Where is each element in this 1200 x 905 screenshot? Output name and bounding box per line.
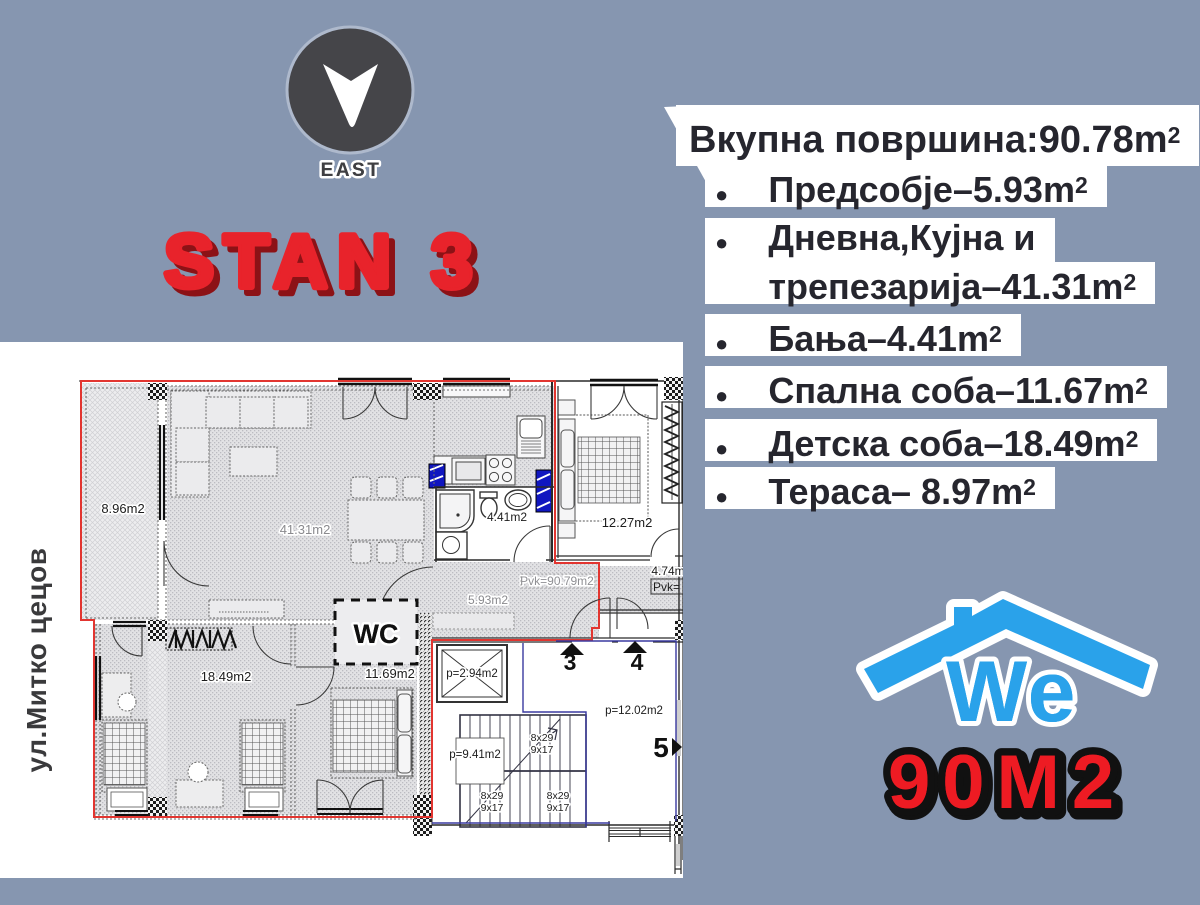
svg-text:ул.Митко цецов: ул.Митко цецов bbox=[21, 548, 52, 773]
svg-text:We: We bbox=[946, 644, 1077, 740]
svg-text:Pvk=: Pvk= bbox=[653, 580, 680, 594]
svg-text:4.74m: 4.74m bbox=[651, 564, 683, 578]
svg-text:3: 3 bbox=[564, 649, 577, 675]
svg-text:EAST: EAST bbox=[321, 160, 382, 181]
svg-text:p=12.02m2: p=12.02m2 bbox=[605, 705, 663, 717]
svg-text:9x17: 9x17 bbox=[481, 802, 504, 814]
svg-text:8x29: 8x29 bbox=[481, 790, 504, 802]
svg-text:Pvk=90.79m2: Pvk=90.79m2 bbox=[520, 574, 594, 588]
svg-text:8x29: 8x29 bbox=[547, 790, 570, 802]
svg-text:STAN 3: STAN 3 bbox=[164, 219, 482, 303]
svg-text:5.93m2: 5.93m2 bbox=[468, 593, 508, 607]
svg-text:4.41m2: 4.41m2 bbox=[487, 510, 527, 524]
svg-text:12.27m2: 12.27m2 bbox=[602, 515, 653, 530]
svg-text:18.49m2: 18.49m2 bbox=[201, 669, 252, 684]
svg-text:90M2: 90M2 bbox=[888, 740, 1126, 825]
svg-text:11.69m2: 11.69m2 bbox=[365, 666, 415, 681]
svg-text:p=2.94m2: p=2.94m2 bbox=[446, 668, 497, 680]
svg-text:9x17: 9x17 bbox=[547, 802, 570, 814]
svg-text:WC: WC bbox=[354, 619, 399, 649]
svg-text:9x17: 9x17 bbox=[531, 744, 554, 756]
svg-text:8x29: 8x29 bbox=[531, 732, 554, 744]
svg-text:4: 4 bbox=[631, 649, 644, 675]
svg-text:41.31m2: 41.31m2 bbox=[280, 522, 331, 537]
svg-text:8.96m2: 8.96m2 bbox=[101, 501, 144, 516]
svg-text:5: 5 bbox=[653, 732, 669, 763]
svg-text:p=9.41m2: p=9.41m2 bbox=[449, 749, 500, 761]
